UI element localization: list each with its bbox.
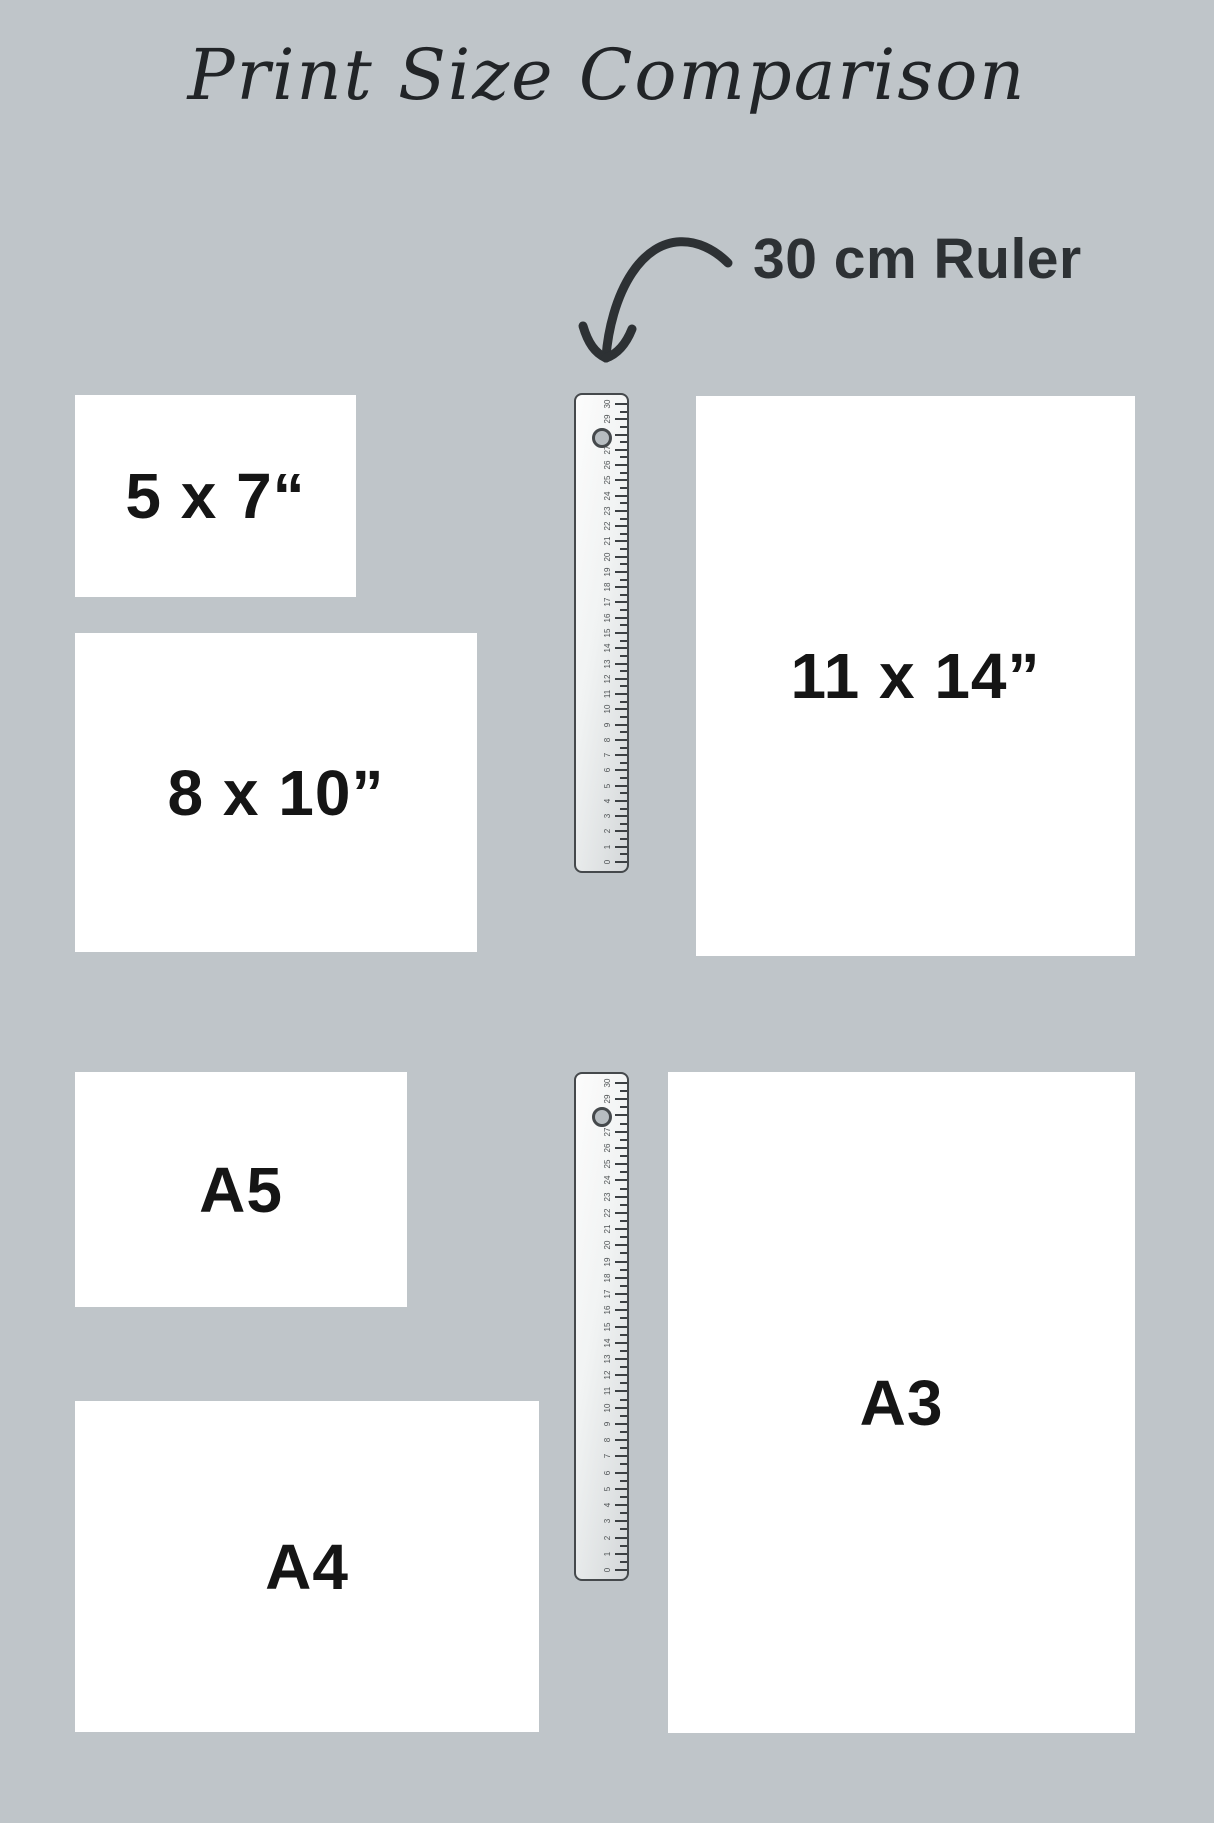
ruler-tick-half-cm [620, 1399, 627, 1401]
ruler-tick-label: 5 [603, 778, 613, 794]
ruler-tick-label: 23 [603, 503, 613, 519]
ruler-tick-cm [615, 1537, 627, 1539]
print-size-label-a5: A5 [199, 1153, 283, 1227]
ruler-tick-label: 3 [603, 1513, 613, 1529]
ruler-tick-label: 20 [603, 1237, 613, 1253]
ruler-tick-half-cm [620, 1545, 627, 1547]
ruler-tick-cm [615, 1277, 627, 1279]
ruler-tick-label: 29 [603, 411, 613, 427]
print-size-box-a3: A3 [668, 1072, 1135, 1733]
ruler-tick-label: 21 [603, 533, 613, 549]
ruler-tick-label: 24 [603, 488, 613, 504]
ruler-tick-label: 4 [603, 1497, 613, 1513]
ruler-tick-half-cm [620, 1252, 627, 1254]
ruler-tick-label: 3 [603, 808, 613, 824]
ruler-tick-half-cm [620, 1204, 627, 1206]
ruler-tick-cm [615, 1342, 627, 1344]
ruler-tick-half-cm [620, 1139, 627, 1141]
ruler-tick-half-cm [620, 456, 627, 458]
ruler-tick-label: 16 [603, 610, 613, 626]
ruler-tick-label: 26 [603, 457, 613, 473]
ruler-tick-half-cm [620, 1415, 627, 1417]
ruler-tick-cm [615, 495, 627, 497]
ruler-tick-half-cm [620, 411, 627, 413]
ruler-tick-half-cm [620, 426, 627, 428]
ruler-tick-cm [615, 708, 627, 710]
ruler-tick-label: 7 [603, 747, 613, 763]
ruler-tick-half-cm [620, 1382, 627, 1384]
ruler-tick-half-cm [620, 1171, 627, 1173]
ruler-tick-cm [615, 1520, 627, 1522]
ruler-tick-half-cm [620, 533, 627, 535]
ruler-tick-half-cm [620, 1285, 627, 1287]
print-size-comparison-poster: Print Size Comparison 30 cm Ruler 5 x 7“… [0, 0, 1214, 1823]
ruler-tick-half-cm [620, 731, 627, 733]
ruler-tick-cm [615, 1569, 627, 1571]
ruler-tick-half-cm [620, 548, 627, 550]
ruler-tick-cm [615, 1472, 627, 1474]
ruler-tick-label: 8 [603, 732, 613, 748]
ruler-tick-half-cm [620, 1334, 627, 1336]
curved-arrow-icon [560, 225, 760, 375]
ruler-tick-cm [615, 1147, 627, 1149]
ruler-tick-cm [615, 418, 627, 420]
ruler-tick-cm [615, 1212, 627, 1214]
ruler-tick-label: 21 [603, 1221, 613, 1237]
ruler-tick-cm [615, 739, 627, 741]
ruler-tick-cm [615, 632, 627, 634]
ruler-tick-label: 11 [603, 686, 613, 702]
ruler-tick-cm [615, 1244, 627, 1246]
ruler-tick-cm [615, 449, 627, 451]
ruler-tick-cm [615, 693, 627, 695]
ruler-tick-label: 12 [603, 1367, 613, 1383]
ruler-tick-half-cm [620, 853, 627, 855]
ruler-callout-label: 30 cm Ruler [753, 226, 1082, 292]
ruler-tick-cm [615, 1082, 627, 1084]
print-size-box-a4: A4 [75, 1401, 539, 1732]
ruler-tick-label: 19 [603, 1254, 613, 1270]
ruler-tick-label: 1 [603, 839, 613, 855]
ruler-tick-cm [615, 663, 627, 665]
print-size-box-11x14: 11 x 14” [696, 396, 1135, 956]
ruler-tick-label: 4 [603, 793, 613, 809]
ruler-tick-cm [615, 1293, 627, 1295]
ruler-tick-cm [615, 525, 627, 527]
ruler-tick-label: 22 [603, 1205, 613, 1221]
ruler-tick-cm [615, 861, 627, 863]
ruler-tick-cm [615, 479, 627, 481]
ruler-tick-half-cm [620, 594, 627, 596]
ruler-tick-half-cm [620, 747, 627, 749]
ruler-tick-cm [615, 1228, 627, 1230]
ruler-tick-half-cm [620, 716, 627, 718]
ruler-tick-cm [615, 769, 627, 771]
ruler-tick-half-cm [620, 762, 627, 764]
ruler-tick-cm [615, 540, 627, 542]
ruler-tick-label: 7 [603, 1448, 613, 1464]
print-size-label-11x14: 11 x 14” [791, 639, 1041, 713]
ruler-tick-half-cm [620, 1301, 627, 1303]
ruler-tick-label: 18 [603, 1270, 613, 1286]
ruler-tick-half-cm [620, 823, 627, 825]
ruler-tick-label: 15 [603, 625, 613, 641]
ruler-tick-label: 14 [603, 640, 613, 656]
ruler-tick-half-cm [620, 1123, 627, 1125]
ruler-tick-cm [615, 586, 627, 588]
ruler-tick-cm [615, 1374, 627, 1376]
ruler-tick-label: 22 [603, 518, 613, 534]
ruler-tick-cm [615, 1309, 627, 1311]
ruler-tick-half-cm [620, 701, 627, 703]
print-size-box-a5: A5 [75, 1072, 407, 1307]
ruler-tick-label: 0 [603, 854, 613, 870]
ruler-tick-half-cm [620, 1269, 627, 1271]
ruler-tick-label: 25 [603, 1156, 613, 1172]
ruler-tick-half-cm [620, 792, 627, 794]
ruler-tick-half-cm [620, 670, 627, 672]
ruler-tick-label: 5 [603, 1481, 613, 1497]
ruler-tick-label: 15 [603, 1319, 613, 1335]
ruler-tick-half-cm [620, 502, 627, 504]
ruler-tick-half-cm [620, 518, 627, 520]
ruler-tick-cm [615, 617, 627, 619]
ruler-tick-half-cm [620, 1528, 627, 1530]
ruler-tick-half-cm [620, 1561, 627, 1563]
ruler-tick-cm [615, 1098, 627, 1100]
ruler-tick-cm [615, 678, 627, 680]
ruler-tick-label: 8 [603, 1432, 613, 1448]
ruler-tick-label: 23 [603, 1189, 613, 1205]
ruler-tick-cm [615, 1390, 627, 1392]
ruler-tick-label: 19 [603, 564, 613, 580]
ruler-tick-cm [615, 510, 627, 512]
ruler-tick-cm [615, 1196, 627, 1198]
ruler-tick-half-cm [620, 685, 627, 687]
ruler-tick-cm [615, 800, 627, 802]
ruler-tick-half-cm [620, 1220, 627, 1222]
ruler-tick-cm [615, 1488, 627, 1490]
ruler-tick-half-cm [620, 1106, 627, 1108]
ruler-tick-half-cm [620, 1236, 627, 1238]
ruler-tick-cm [615, 571, 627, 573]
ruler-tick-cm [615, 785, 627, 787]
ruler-tick-cm [615, 1358, 627, 1360]
ruler-tick-half-cm [620, 579, 627, 581]
ruler-tick-label: 13 [603, 1351, 613, 1367]
ruler-tick-half-cm [620, 1463, 627, 1465]
ruler-tick-cm [615, 647, 627, 649]
ruler-tick-cm [615, 724, 627, 726]
ruler-tick-label: 6 [603, 762, 613, 778]
ruler-tick-cm [615, 754, 627, 756]
page-title: Print Size Comparison [0, 34, 1214, 116]
ruler-hanging-hole [592, 1107, 612, 1127]
ruler-tick-label: 10 [603, 701, 613, 717]
print-size-label-a4: A4 [265, 1530, 349, 1604]
ruler-tick-cm [615, 1261, 627, 1263]
ruler-tick-half-cm [620, 1155, 627, 1157]
ruler-tick-label: 26 [603, 1140, 613, 1156]
ruler-tick-label: 16 [603, 1302, 613, 1318]
ruler-tick-cm [615, 1455, 627, 1457]
ruler-30cm-icon-top: 3029282726252423222120191817161514131211… [574, 393, 629, 873]
ruler-tick-cm [615, 556, 627, 558]
ruler-tick-cm [615, 1131, 627, 1133]
ruler-tick-cm [615, 601, 627, 603]
ruler-tick-label: 10 [603, 1400, 613, 1416]
ruler-tick-half-cm [620, 1480, 627, 1482]
ruler-tick-half-cm [620, 1447, 627, 1449]
ruler-tick-cm [615, 830, 627, 832]
ruler-tick-cm [615, 1439, 627, 1441]
ruler-tick-half-cm [620, 441, 627, 443]
ruler-tick-label: 25 [603, 472, 613, 488]
ruler-tick-label: 14 [603, 1335, 613, 1351]
ruler-tick-half-cm [620, 563, 627, 565]
ruler-tick-cm [615, 846, 627, 848]
ruler-tick-label: 9 [603, 1416, 613, 1432]
ruler-tick-half-cm [620, 487, 627, 489]
ruler-tick-half-cm [620, 808, 627, 810]
print-size-box-8x10: 8 x 10” [75, 633, 477, 952]
ruler-tick-cm [615, 1423, 627, 1425]
ruler-tick-cm [615, 1326, 627, 1328]
ruler-tick-label: 30 [603, 396, 613, 412]
ruler-tick-cm [615, 1504, 627, 1506]
ruler-tick-half-cm [620, 838, 627, 840]
ruler-tick-label: 9 [603, 717, 613, 733]
ruler-tick-label: 17 [603, 1286, 613, 1302]
ruler-tick-label: 2 [603, 1530, 613, 1546]
ruler-tick-cm [615, 1407, 627, 1409]
ruler-tick-half-cm [620, 777, 627, 779]
ruler-tick-cm [615, 1114, 627, 1116]
ruler-tick-half-cm [620, 1431, 627, 1433]
ruler-tick-half-cm [620, 609, 627, 611]
ruler-tick-cm [615, 1179, 627, 1181]
ruler-tick-cm [615, 815, 627, 817]
ruler-tick-label: 6 [603, 1465, 613, 1481]
ruler-tick-label: 29 [603, 1091, 613, 1107]
ruler-tick-label: 1 [603, 1546, 613, 1562]
ruler-tick-cm [615, 464, 627, 466]
ruler-tick-half-cm [620, 1496, 627, 1498]
ruler-30cm-icon-bottom: 3029282726252423222120191817161514131211… [574, 1072, 629, 1581]
ruler-tick-label: 12 [603, 671, 613, 687]
ruler-tick-label: 13 [603, 656, 613, 672]
ruler-tick-half-cm [620, 640, 627, 642]
ruler-tick-half-cm [620, 1317, 627, 1319]
ruler-tick-half-cm [620, 655, 627, 657]
ruler-tick-label: 30 [603, 1075, 613, 1091]
print-size-label-a3: A3 [860, 1366, 944, 1440]
ruler-tick-half-cm [620, 1188, 627, 1190]
ruler-tick-half-cm [620, 1090, 627, 1092]
ruler-tick-half-cm [620, 624, 627, 626]
ruler-tick-label: 20 [603, 549, 613, 565]
ruler-tick-cm [615, 403, 627, 405]
ruler-tick-label: 0 [603, 1562, 613, 1578]
ruler-tick-half-cm [620, 1366, 627, 1368]
ruler-tick-label: 18 [603, 579, 613, 595]
print-size-label-5x7: 5 x 7“ [125, 459, 305, 533]
ruler-tick-half-cm [620, 472, 627, 474]
ruler-tick-label: 24 [603, 1172, 613, 1188]
ruler-tick-half-cm [620, 1512, 627, 1514]
ruler-tick-label: 2 [603, 823, 613, 839]
ruler-hanging-hole [592, 428, 612, 448]
ruler-tick-half-cm [620, 1350, 627, 1352]
ruler-tick-cm [615, 434, 627, 436]
ruler-tick-label: 11 [603, 1383, 613, 1399]
print-size-box-5x7: 5 x 7“ [75, 395, 356, 597]
ruler-tick-cm [615, 1163, 627, 1165]
ruler-tick-label: 17 [603, 594, 613, 610]
ruler-tick-cm [615, 1553, 627, 1555]
print-size-label-8x10: 8 x 10” [168, 756, 385, 830]
